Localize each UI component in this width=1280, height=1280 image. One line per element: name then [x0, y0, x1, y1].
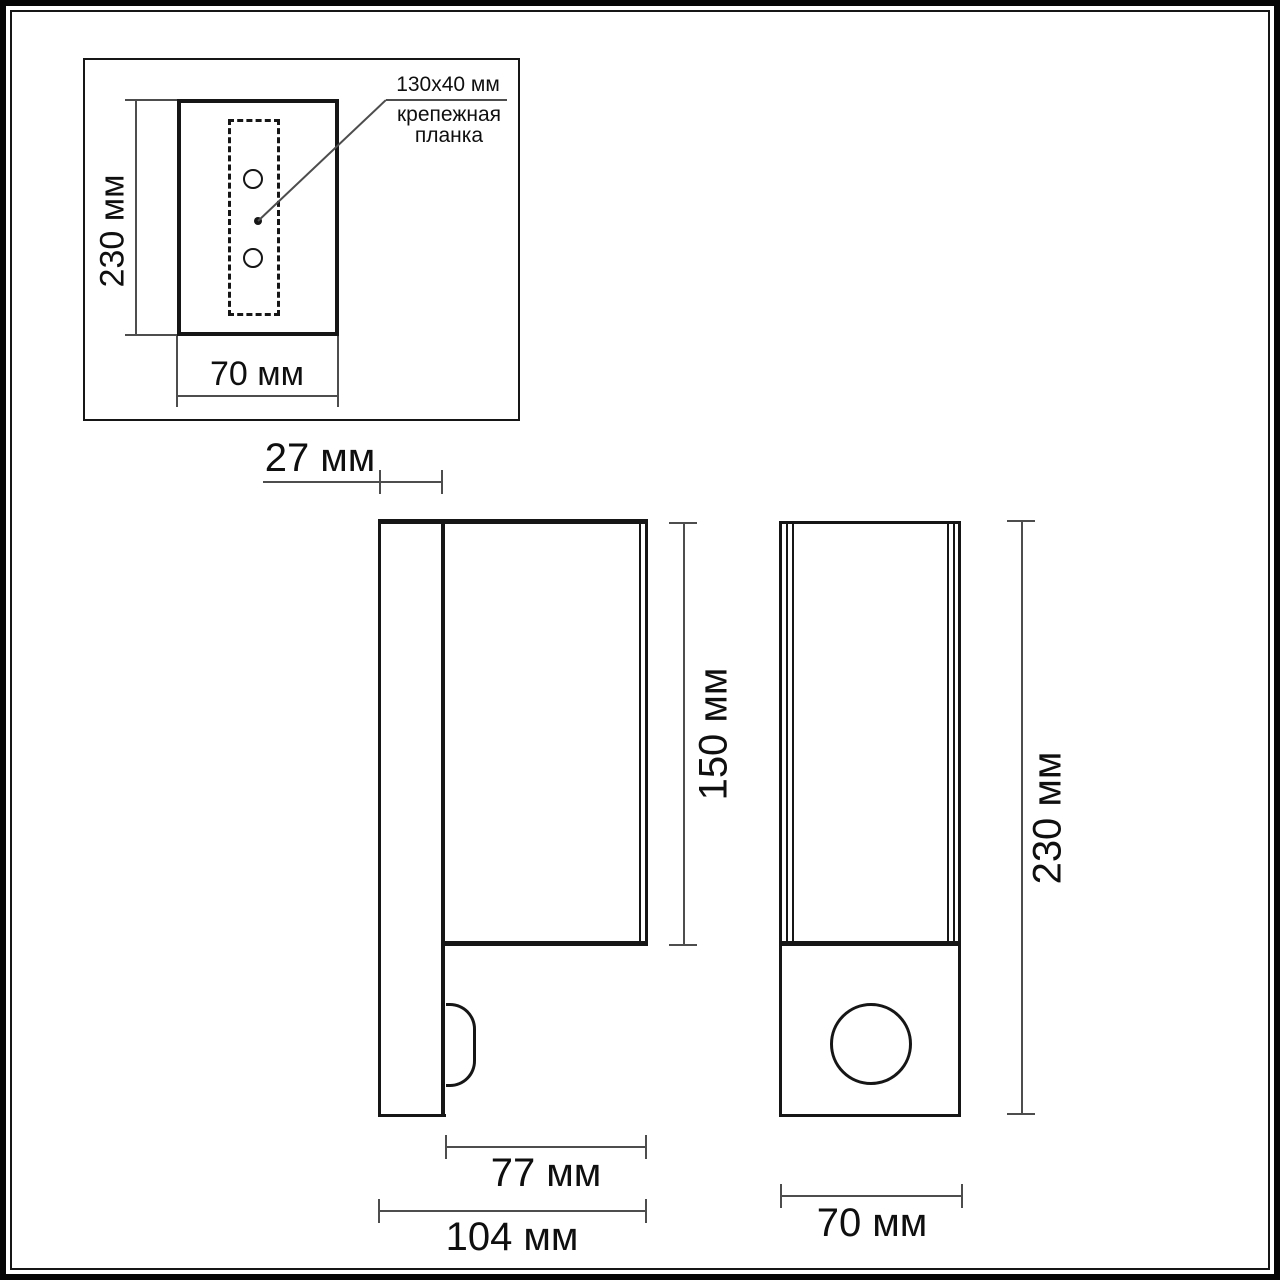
screw-hole-bottom: [243, 248, 263, 268]
total-height-bar-bottom: [1007, 1113, 1035, 1115]
front-tube-right-line-1: [947, 524, 949, 941]
front-width-label: 70 мм: [817, 1202, 928, 1245]
side-plate-left-edge: [378, 519, 381, 1117]
inset-height-ext-top: [125, 99, 177, 101]
side-body-right-inner-line: [639, 524, 641, 941]
inset-width-label: 70 мм: [210, 356, 304, 393]
front-tube-left-line-2: [792, 524, 794, 941]
plate-depth-tick-left: [379, 470, 381, 494]
plate-depth-label: 27 мм: [265, 437, 376, 480]
body-height-bar-top: [669, 522, 697, 524]
side-top-edge: [378, 519, 648, 524]
inset-height-dim-line: [135, 99, 137, 336]
body-height-label: 150 мм: [692, 668, 735, 801]
mount-size-label: 130x40 мм: [396, 74, 500, 95]
body-depth-tick-right: [645, 1135, 647, 1159]
total-height-label: 230 мм: [1026, 752, 1069, 885]
plate-depth-tick-right: [441, 470, 443, 494]
side-body-bottom-edge: [441, 941, 648, 946]
mount-plate-label: крепежная планка: [374, 104, 524, 146]
side-body-right-outer-edge: [645, 519, 648, 946]
body-height-bar-bottom: [669, 944, 697, 946]
leader-line-horizontal: [386, 99, 507, 101]
side-plate-front-edge: [441, 519, 445, 1117]
front-width-dim-line: [781, 1195, 963, 1197]
inset-height-label: 230 мм: [95, 175, 132, 288]
front-tube-left-line-1: [786, 524, 788, 941]
front-tube-right-line-2: [953, 524, 955, 941]
front-base-divider: [779, 941, 961, 946]
body-depth-dim-line: [446, 1146, 647, 1148]
total-height-bar-top: [1007, 520, 1035, 522]
total-depth-dim-line: [379, 1210, 647, 1212]
total-depth-tick-right: [645, 1199, 647, 1223]
total-depth-tick-left: [378, 1199, 380, 1223]
front-width-tick-left: [780, 1184, 782, 1208]
front-width-tick-right: [961, 1184, 963, 1208]
side-plate-bottom-edge: [378, 1114, 446, 1117]
inset-width-dim-line: [177, 395, 339, 397]
plate-depth-dim-line: [263, 481, 443, 483]
screw-hole-top: [243, 169, 263, 189]
sensor-circle: [830, 1003, 912, 1085]
dimension-drawing: 130x40 мм крепежная планка 230 мм 70 мм …: [0, 0, 1280, 1280]
body-depth-label: 77 мм: [491, 1152, 602, 1195]
inset-height-ext-bottom: [125, 334, 177, 336]
sensor-knob-profile: [446, 1003, 476, 1087]
total-depth-label: 104 мм: [446, 1216, 579, 1259]
body-height-dim-line: [683, 523, 685, 946]
body-depth-tick-left: [445, 1135, 447, 1159]
total-height-dim-line: [1021, 521, 1023, 1115]
